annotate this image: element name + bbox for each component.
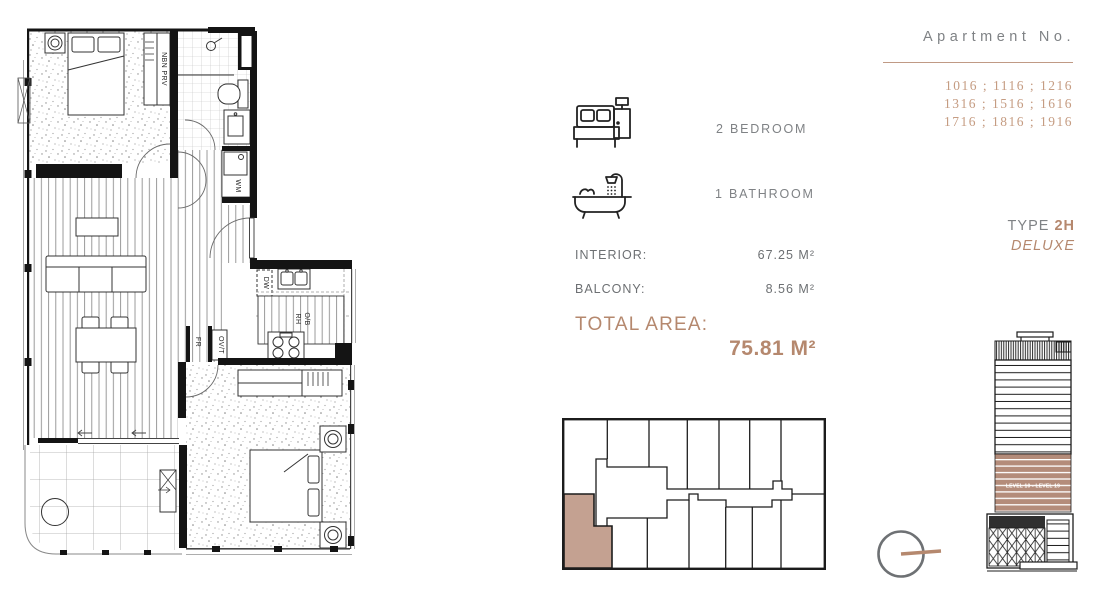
apartment-numbers: 1016 ; 1116 ; 1216 1316 ; 1516 ; 1616 17…: [882, 77, 1073, 131]
bedroom-count-label: 2 BEDROOM: [716, 122, 807, 136]
balcony-value: 8.56 M²: [766, 282, 815, 296]
dw-label: DW: [262, 277, 269, 289]
sofa: [46, 256, 146, 292]
building-elevation: LEVEL 10 - LEVEL 19: [984, 330, 1092, 576]
dining-table: [76, 328, 136, 362]
bed-icon: [572, 96, 636, 158]
apartment-numbers-line1: 1016 ; 1116 ; 1216: [882, 77, 1073, 95]
toilet-icon: [218, 84, 240, 104]
compass-icon: [868, 520, 950, 586]
floor-plan: NBN PRV WM DW RH O/B OV/T FR: [12, 20, 362, 565]
ob-label: O/B: [303, 312, 310, 325]
type-code: 2H: [1054, 218, 1075, 234]
fr-label: FR: [194, 337, 201, 347]
page: NBN PRV WM DW RH O/B OV/T FR 2 BEDROOM: [0, 0, 1117, 590]
nbn-prv-label: NBN PRV: [160, 52, 167, 86]
ovt-label: OV/T: [217, 336, 224, 354]
kitchen: [212, 269, 350, 360]
title-underline: [883, 62, 1073, 63]
rh-label: RH: [294, 314, 301, 325]
type-variant: DELUXE: [899, 238, 1075, 254]
interior-area-row: INTERIOR: 67.25 M²: [575, 248, 815, 262]
elevation-highlight-band: LEVEL 10 - LEVEL 19: [995, 454, 1071, 512]
apartment-numbers-line3: 1716 ; 1816 ; 1916: [882, 113, 1073, 131]
keyplan: [562, 418, 826, 570]
level-band-label: LEVEL 10 - LEVEL 19: [1006, 484, 1060, 490]
elevation-roof: [995, 332, 1071, 360]
elevation-tower: [995, 360, 1071, 454]
total-area-label: TOTAL AREA:: [575, 314, 708, 336]
balcony-floor: [30, 445, 179, 550]
balcony-area-row: BALCONY: 8.56 M²: [575, 282, 815, 296]
type-line: TYPE 2H: [899, 218, 1075, 234]
living-floor: [29, 178, 178, 438]
entry-floor: [222, 205, 250, 263]
bath-icon: [570, 168, 634, 222]
tv-unit: [76, 218, 118, 236]
interior-value: 67.25 M²: [758, 248, 815, 262]
apartment-no-title: Apartment No.: [820, 29, 1075, 45]
total-area-value: 75.81 M²: [575, 337, 816, 361]
basin-icon: [228, 116, 243, 136]
apartment-numbers-line2: 1316 ; 1516 ; 1616: [882, 95, 1073, 113]
interior-label: INTERIOR:: [575, 248, 647, 262]
wm-label: WM: [234, 179, 241, 192]
balcony-label: BALCONY:: [575, 282, 646, 296]
elevation-podium: [987, 514, 1077, 571]
bathroom-count-label: 1 BATHROOM: [715, 187, 815, 201]
type-prefix: TYPE: [1008, 218, 1055, 234]
